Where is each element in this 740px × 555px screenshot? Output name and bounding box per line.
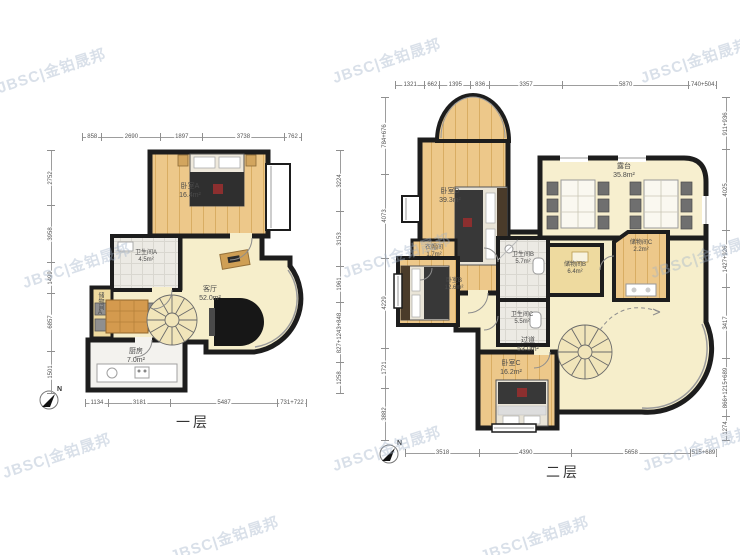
dim-col-floor1-right: 3224 3153 1961 827+1243+848 1258 bbox=[336, 150, 344, 394]
room-label-corridor: 过道53.0m² bbox=[504, 337, 552, 354]
kitchen-counter-icon bbox=[97, 364, 177, 382]
dim-row-floor1-top: 858 2690 1897 3738 762 bbox=[82, 133, 302, 141]
room-label-terrace: 露台35.8m² bbox=[596, 163, 652, 180]
compass-icon-floor2 bbox=[380, 445, 398, 463]
dim-row-floor2-bottom: 3518 4390 5658 515+689 bbox=[405, 449, 717, 457]
bedroom-d-arch bbox=[437, 95, 509, 141]
room-label-bathroom-b: 卫生间B5.7m² bbox=[500, 252, 546, 266]
spiral-stair-icon bbox=[558, 325, 612, 379]
north-label-floor1: N bbox=[57, 386, 62, 393]
dim-row-floor2-top: 1321 662 1395 836 3357 5870 740+504 bbox=[395, 81, 717, 89]
room-label-storage-a: 储物间A bbox=[96, 292, 105, 336]
room-label-bedroom-a: 卧室A16.4m² bbox=[158, 183, 222, 200]
north-label-floor2: N bbox=[397, 440, 402, 447]
floor1-title: 一层 bbox=[176, 412, 210, 432]
floor2-title: 二层 bbox=[546, 462, 580, 482]
floorplan-image: 卧室A16.4m² 卫生间A4.5m² 客厅52.0m² 储物间A 厨房7.0m… bbox=[0, 0, 740, 555]
room-label-kitchen: 厨房7.0m² bbox=[108, 348, 164, 365]
dim-col-floor1-left: 2752 3958 1499 6857 1501 bbox=[47, 150, 55, 394]
room-label-bathroom-c: 卫生间C5.5m² bbox=[500, 312, 544, 326]
bed-icon bbox=[401, 266, 449, 320]
room-label-living: 客厅52.0m² bbox=[178, 286, 242, 303]
room-label-wardrobe: 衣帽间1.7m² bbox=[410, 245, 458, 259]
room-label-storage-b: 储物间B6.4m² bbox=[550, 262, 600, 276]
floor2-plan bbox=[380, 95, 712, 463]
balcony-bedroom-a bbox=[266, 164, 290, 230]
room-label-bathroom-a: 卫生间A4.5m² bbox=[118, 250, 174, 264]
dim-row-floor1-bottom: 1134 3181 5487 731+722 bbox=[85, 399, 307, 407]
bed-icon bbox=[496, 380, 548, 426]
dim-col-floor2-left: 784+676 4073 4229 1721 3882 bbox=[381, 97, 389, 441]
room-label-bedroom-b: 卧室B12.6m² bbox=[432, 278, 476, 292]
piano-icon bbox=[214, 298, 264, 346]
room-label-bedroom-c: 卧室C16.2m² bbox=[488, 360, 534, 377]
room-label-bedroom-d: 卧室D39.3m² bbox=[422, 188, 478, 205]
dim-col-floor2-right: 911+936 4025 1427+926 3417 866+1215+689 … bbox=[722, 97, 730, 441]
room-label-storage-c: 储物间C2.2m² bbox=[617, 240, 665, 254]
